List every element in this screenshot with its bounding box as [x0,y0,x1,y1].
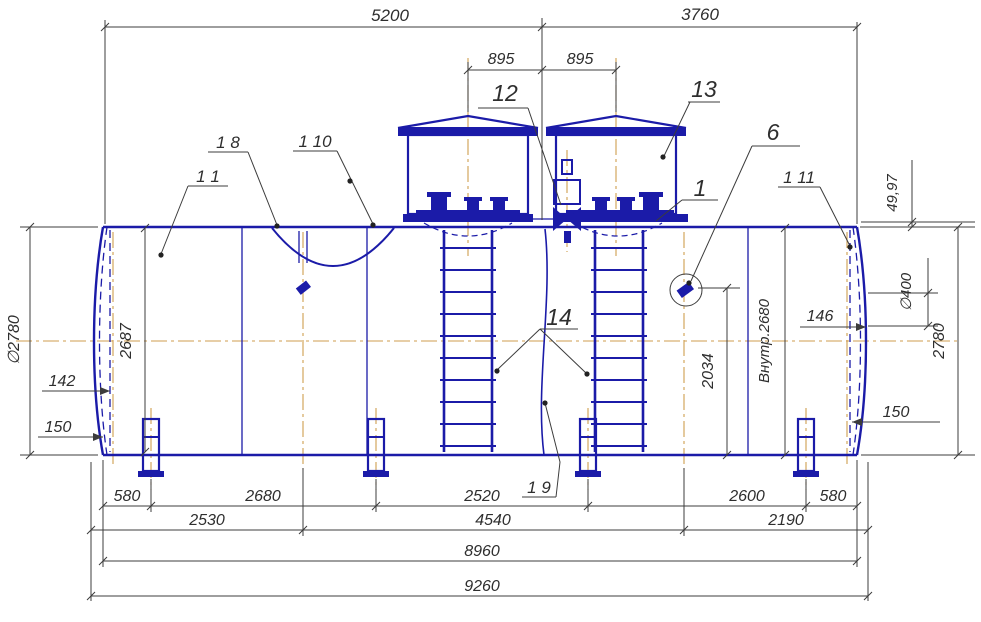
seam-1-10-label: 1 10 [298,132,332,151]
dim-fitting-elevation-label: 2034 [700,353,717,390]
drawing-sheet: 5200 3760 895 895 49,97 ∅400 2780 146 15… [0,0,981,622]
dim-row1-1-label: 580 [114,488,141,505]
callout-1-label: 1 [694,175,707,201]
callout-13-label: 13 [691,76,717,102]
dim-row2-2-label: 4540 [475,512,511,529]
seam-1-9-label: 1 9 [527,478,551,497]
dim-row1-5-label: 580 [820,488,847,505]
dim-head-inset-right-label: 146 [807,308,834,325]
seam-1-1-label: 1 1 [196,167,220,186]
center-lines [16,58,960,490]
fitting-detail [670,274,702,306]
dim-row1-3-label: 2520 [463,488,500,505]
callout-6-label: 6 [767,119,780,145]
top-saddle-dip [272,228,394,266]
dim-internal-height-label: 2687 [118,322,135,360]
hatch-right-flange-plate [566,210,674,218]
dip-fitting [296,281,311,295]
dim-hatch-pitch-right-label: 895 [567,51,594,68]
dim-shell-left-label: 5200 [371,6,409,25]
valve-drop-pipe [564,231,571,243]
dim-support-height-right-label: 150 [883,404,910,421]
ladder-left-rungs [440,248,496,446]
seam-1-8-label: 1 8 [216,133,240,152]
dim-diam-left-label: ∅2780 [6,315,23,365]
callout-labels: 12 13 6 1 14 1 8 1 10 1 1 1 11 1 9 [196,76,815,497]
dim-head-inset-left-label: 142 [49,373,76,390]
hatch-right-neck-opening [574,223,662,236]
dim-row2-1-label: 2530 [188,512,225,529]
break-line [541,229,547,455]
callout-12-label: 12 [492,80,518,106]
supports [138,419,819,477]
ladder-right-rungs [591,248,647,446]
hatch-right-nozzles [592,192,663,210]
tank-geometry [94,214,866,455]
dim-overall-length-label: 9260 [464,578,500,595]
seam-1-11-label: 1 11 [783,168,815,187]
station-centerlines [113,58,847,490]
dim-row2-3-label: 2190 [767,512,804,529]
hatch-left-flange-plate [416,210,520,218]
dim-row1-2-label: 2680 [244,488,281,505]
leader-lines [161,102,850,497]
dim-support-height-left-label: 150 [45,419,72,436]
dim-hatch-pitch-left-label: 895 [488,51,515,68]
callout-14-label: 14 [546,304,572,330]
dim-shell-length-label: 8960 [464,543,500,560]
dim-internal-diam-label: Внутр.2680 [756,298,773,383]
dim-row1-4-label: 2600 [728,488,765,505]
dim-nozzle-diam-label: ∅400 [898,272,915,311]
fitting-nozzle [677,282,694,298]
dim-shell-right-label: 3760 [681,5,719,24]
drawing-canvas: 5200 3760 895 895 49,97 ∅400 2780 146 15… [0,0,981,622]
dim-diam-right-label: 2780 [931,323,948,360]
hatch-right-roof-band [546,127,686,136]
hatch-left-roof-band [398,127,538,136]
dim-head-rise-label: 49,97 [884,174,901,212]
